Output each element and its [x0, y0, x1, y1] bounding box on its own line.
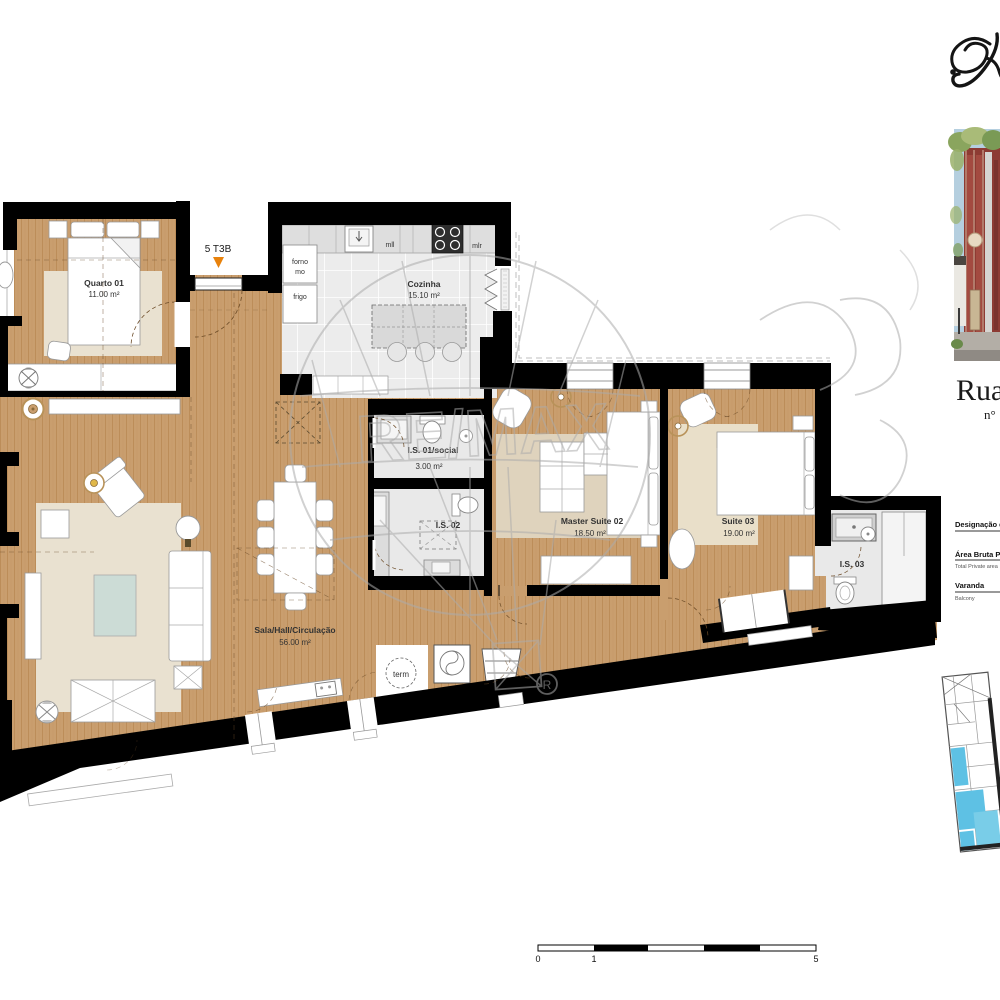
- svg-text:Master Suite 02: Master Suite 02: [561, 516, 624, 526]
- svg-text:Total Private area: Total Private area: [955, 564, 999, 570]
- svg-text:Suite 03: Suite 03: [722, 516, 755, 526]
- svg-text:n°: n°: [984, 407, 996, 422]
- svg-text:0: 0: [535, 954, 540, 964]
- svg-text:Varanda: Varanda: [955, 581, 985, 590]
- svg-text:mll: mll: [386, 242, 395, 249]
- svg-text:mlr: mlr: [472, 243, 482, 250]
- svg-text:15.10 m²: 15.10 m²: [408, 291, 440, 300]
- svg-text:1: 1: [591, 954, 596, 964]
- svg-text:11.00 m²: 11.00 m²: [89, 290, 120, 299]
- svg-text:5: 5: [813, 954, 818, 964]
- svg-text:Rua: Rua: [956, 374, 1000, 407]
- svg-text:I.S. 02: I.S. 02: [436, 520, 461, 530]
- svg-text:56.00 m²: 56.00 m²: [279, 638, 311, 647]
- svg-text:Designação d: Designação d: [955, 520, 1000, 529]
- svg-text:Cozinha: Cozinha: [407, 279, 440, 289]
- svg-text:Sala/Hall/Circulação: Sala/Hall/Circulação: [254, 625, 335, 635]
- svg-text:RE/MAX: RE/MAX: [355, 389, 611, 476]
- svg-text:5 T3B: 5 T3B: [205, 244, 232, 255]
- svg-text:Área Bruta P: Área Bruta P: [955, 550, 1000, 559]
- svg-text:R: R: [543, 678, 552, 692]
- svg-text:Quarto 01: Quarto 01: [84, 278, 124, 288]
- svg-text:I.S. 03: I.S. 03: [840, 559, 865, 569]
- svg-text:forno: forno: [292, 259, 308, 266]
- svg-text:term: term: [393, 670, 409, 679]
- svg-text:frigo: frigo: [293, 294, 307, 301]
- svg-text:Balcony: Balcony: [955, 596, 975, 602]
- svg-text:19.00 m²: 19.00 m²: [723, 529, 755, 538]
- svg-text:mo: mo: [295, 269, 305, 276]
